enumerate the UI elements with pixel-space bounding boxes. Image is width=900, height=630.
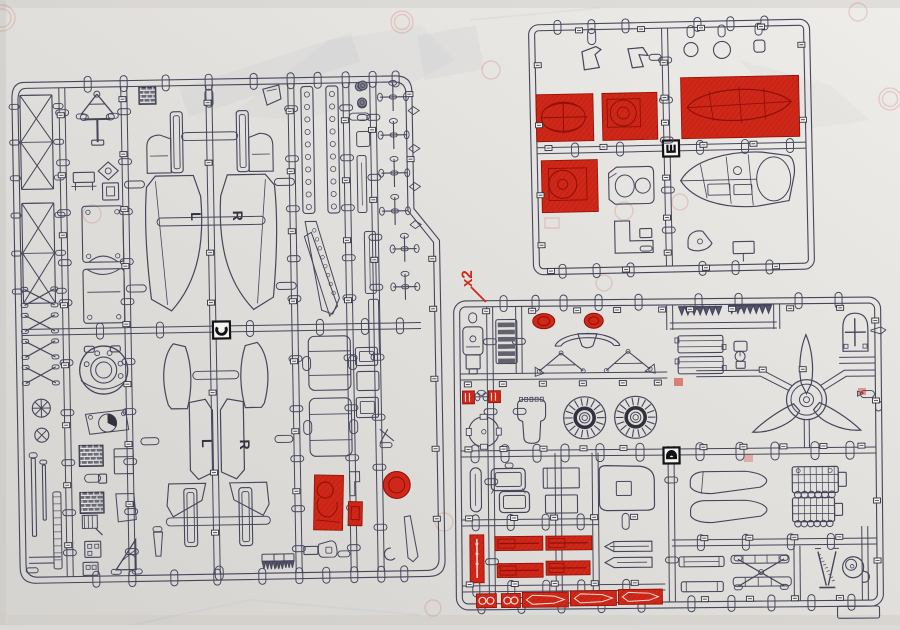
svg-text:L: L [188,212,204,221]
svg-text:L: L [199,439,215,448]
svg-text:R: R [230,210,246,220]
svg-text:x2: x2 [459,270,476,287]
svg-text:R: R [237,439,253,449]
